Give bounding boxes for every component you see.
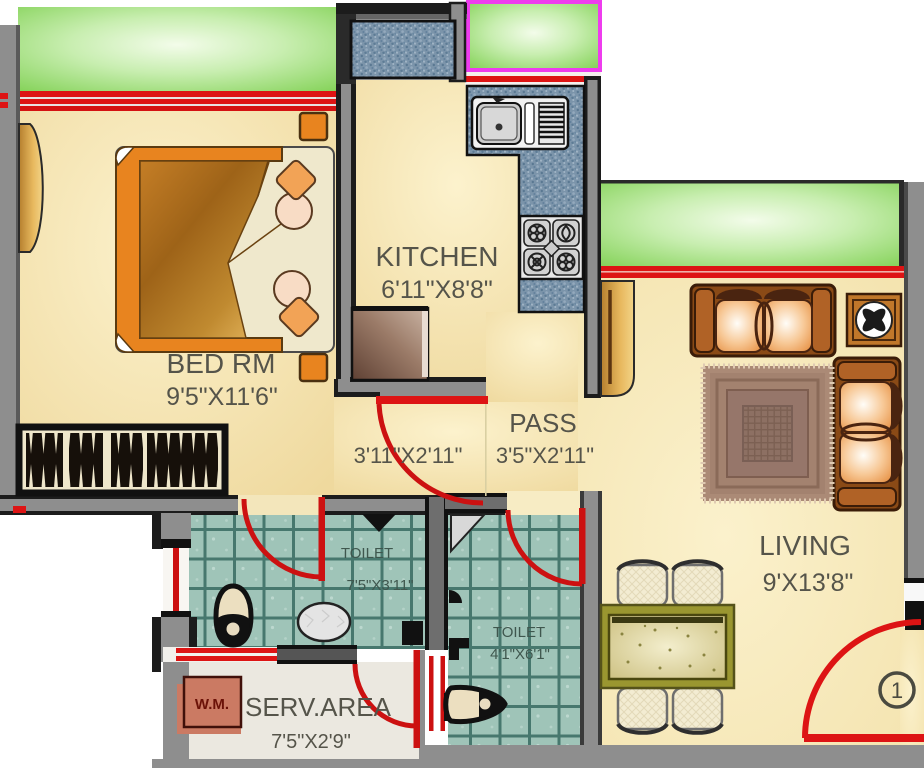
svg-text:1: 1: [891, 678, 903, 703]
svg-text:W.M.: W.M.: [195, 696, 229, 713]
svg-text:PASS: PASS: [509, 408, 576, 438]
svg-text:3'11"X2'11": 3'11"X2'11": [354, 443, 463, 468]
svg-text:KITCHEN: KITCHEN: [376, 241, 499, 272]
svg-text:6'11"X8'8": 6'11"X8'8": [381, 276, 493, 304]
svg-text:LIVING: LIVING: [759, 530, 851, 561]
svg-text:7'5"X3'11": 7'5"X3'11": [347, 577, 414, 594]
svg-text:TOILET: TOILET: [493, 624, 545, 641]
svg-text:BED RM: BED RM: [167, 348, 276, 379]
svg-text:7'5"X2'9": 7'5"X2'9": [271, 731, 351, 753]
svg-text:9'5"X11'6": 9'5"X11'6": [166, 383, 278, 411]
svg-text:SERV.AREA: SERV.AREA: [245, 692, 392, 722]
svg-text:9'X13'8": 9'X13'8": [763, 569, 854, 597]
svg-text:4'1"X6'1": 4'1"X6'1": [490, 646, 550, 663]
svg-text:3'5"X2'11": 3'5"X2'11": [496, 443, 594, 468]
svg-text:TOILET: TOILET: [341, 545, 393, 562]
